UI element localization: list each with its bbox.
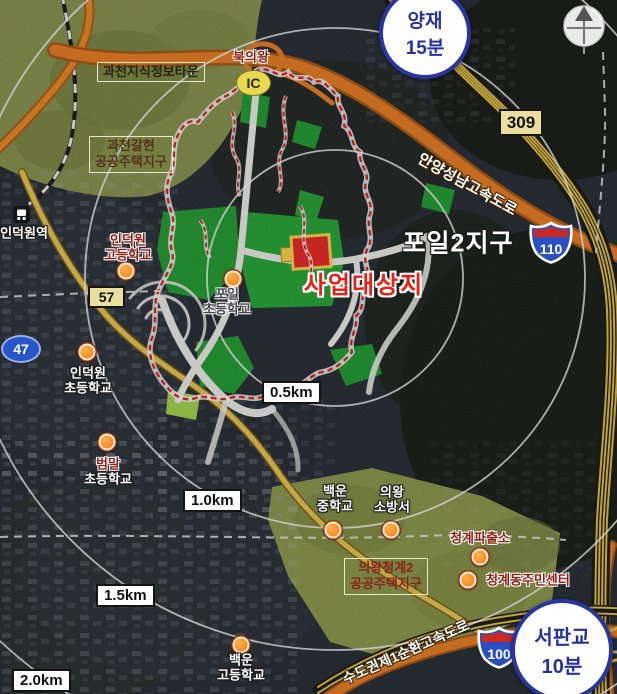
svg-text:100: 100 xyxy=(487,646,511,662)
callout-line: 서판교 xyxy=(534,621,589,650)
callout-line: 양재 xyxy=(408,6,443,33)
callout-line: 10분 xyxy=(542,650,583,679)
label-uiwang-fire-station: 의왕 소방서 xyxy=(374,485,410,516)
label-north-uiwang: 북의왕 xyxy=(233,49,269,64)
label-indeogwon-elementary: 인덕원 초등학교 xyxy=(64,366,112,397)
callout-seopangyo-10min: 서판교 10분 xyxy=(511,599,613,694)
poi-dot-beommal-elem xyxy=(99,434,116,451)
label-cheonggye-police: 청계파출소 xyxy=(450,530,510,545)
poi-dot-uiwang-fire xyxy=(383,522,400,539)
zone-label-gwacheon-galhyeon: 과천갈현 공공주택지구 xyxy=(89,136,173,173)
zone-label-line: 의왕청계2 xyxy=(350,560,422,576)
svg-text:110: 110 xyxy=(540,241,563,257)
ring-label-15km: 1.5km xyxy=(96,584,155,607)
poi-dot-cheonggye-police xyxy=(472,549,489,566)
label-line: 초등학교 xyxy=(84,472,132,487)
route-309-shield: 309 xyxy=(499,109,543,136)
poi-dot-indeogwon-elem xyxy=(79,344,96,361)
label-line: 범말 xyxy=(84,457,132,472)
label-indeogwon-high-school: 인덕원 고등학교 xyxy=(104,233,152,264)
label-poil-elementary: 포일 초등학교 xyxy=(203,287,251,318)
route-47-shield: 47 xyxy=(1,335,41,363)
zone-label-uiwang-cheonggye2: 의왕청계2 공공주택지구 xyxy=(344,558,428,595)
poi-dot-baegun-mid xyxy=(325,522,342,539)
ring-label-05km: 0.5km xyxy=(262,381,321,404)
label-line: 고등학교 xyxy=(217,668,265,683)
label-project-site: 사업대상지 xyxy=(304,272,424,300)
poi-dot-baegun-high xyxy=(233,637,250,654)
label-beommal-elementary: 범말 초등학교 xyxy=(84,457,132,488)
label-indeogwon-station: 인덕원역 xyxy=(0,225,48,240)
ring-label-20km: 2.0km xyxy=(12,669,71,692)
route-110-shield: 110 xyxy=(529,221,573,264)
label-line: 인덕원 xyxy=(64,366,112,381)
label-line: 백운 xyxy=(217,653,265,668)
zone-label-line: 과천갈현 xyxy=(95,138,167,154)
label-line: 포일 xyxy=(203,287,251,302)
route-57-shield: 57 xyxy=(88,286,125,308)
zone-label-gwacheon-tech: 과천지식정보타운 xyxy=(97,62,205,82)
zone-label-line: 공공주택지구 xyxy=(350,576,422,592)
label-baegun-high-school: 백운 고등학교 xyxy=(217,653,265,684)
label-poil2-district: 포일2지구 xyxy=(403,229,514,259)
label-line: 초등학교 xyxy=(64,381,112,396)
subway-station-icon xyxy=(13,206,30,223)
label-line: 고등학교 xyxy=(104,248,152,263)
label-line: 중학교 xyxy=(317,499,353,514)
zone-label-line: 공공주택지구 xyxy=(95,154,167,170)
poi-dot-cheonggye-center xyxy=(460,572,477,589)
ic-shield: IC xyxy=(236,70,271,96)
label-baegun-middle-school: 백운 중학교 xyxy=(317,484,353,515)
label-cheonggye-community-center: 청계동주민센터 xyxy=(486,572,570,587)
label-line: 소방서 xyxy=(374,500,410,515)
label-line: 인덕원 xyxy=(104,233,152,248)
poi-dot-indeogwon-high xyxy=(118,263,135,280)
label-line: 초등학교 xyxy=(203,302,251,317)
ring-label-10km: 1.0km xyxy=(183,489,242,512)
north-compass-icon xyxy=(561,0,607,56)
callout-line: 15분 xyxy=(406,33,445,60)
label-line: 백운 xyxy=(317,484,353,499)
site-location-map: 과천지식정보타운 과천갈현 공공주택지구 북의왕 IC 309 안양성남고속도로… xyxy=(0,0,617,694)
label-line: 의왕 xyxy=(374,485,410,500)
poi-dot-poil-elem xyxy=(225,271,242,288)
